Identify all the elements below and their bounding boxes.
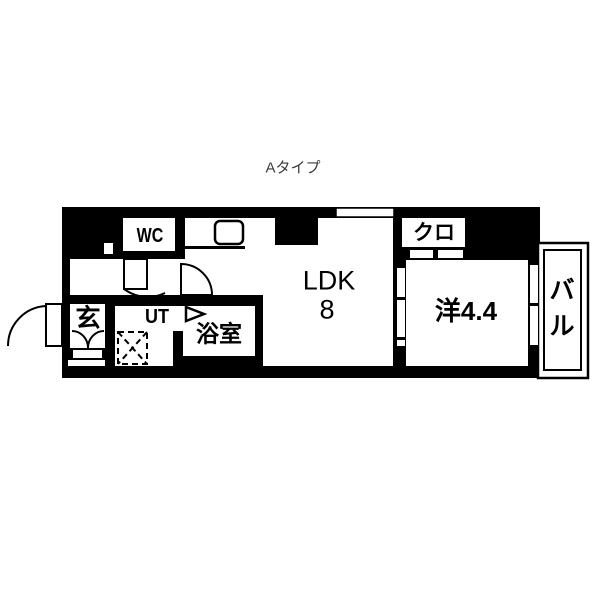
wc-door-leaf bbox=[124, 259, 147, 289]
closet-sliding-door-right bbox=[437, 249, 464, 259]
closet-sliding-door-left bbox=[409, 249, 434, 259]
bathroom-door-opening bbox=[173, 306, 183, 331]
balcony-window-gap-1 bbox=[530, 265, 538, 303]
floor-plan-page: Aタイプ bbox=[0, 0, 600, 600]
wall-block-top-left bbox=[62, 207, 123, 259]
wall-top bbox=[62, 207, 540, 218]
balcony-outline bbox=[538, 243, 588, 378]
kitchen-sink-symbol bbox=[215, 221, 243, 244]
room-size-ldk: 8 bbox=[319, 297, 334, 324]
balcony-window-gap-2 bbox=[530, 306, 538, 345]
room-label-balcony-bottom: ル bbox=[549, 315, 574, 340]
sliding-door-gap-2 bbox=[397, 300, 405, 337]
room-label-closet: クロ bbox=[413, 223, 455, 244]
room-label-utility: UT bbox=[145, 307, 169, 327]
wall-below-wc bbox=[123, 251, 185, 259]
sliding-door-gap-1 bbox=[397, 268, 405, 297]
entrance-door-leaf bbox=[46, 304, 62, 346]
wall-bath-bottom bbox=[183, 356, 263, 366]
kitchen-counter-edge bbox=[185, 246, 245, 249]
floor-plan-drawing bbox=[0, 0, 600, 600]
room-label-western: 洋4.4 bbox=[435, 298, 497, 324]
wall-niche bbox=[104, 243, 113, 254]
wall-bottom bbox=[62, 366, 540, 378]
washing-machine-symbol bbox=[118, 332, 147, 364]
room-label-wc: WC bbox=[137, 226, 164, 246]
wall-block-top-right bbox=[465, 218, 540, 260]
entrance-door-swing bbox=[8, 306, 46, 346]
ldk-door-swing bbox=[181, 264, 212, 295]
wall-ut-bath bbox=[173, 331, 183, 366]
wall-pillar-ldk bbox=[275, 217, 318, 245]
room-label-balcony-top: バ bbox=[549, 279, 574, 304]
sliding-door-gap-3 bbox=[397, 340, 405, 346]
room-label-entrance: 玄 bbox=[75, 307, 100, 332]
entrance-step-upper bbox=[72, 349, 103, 359]
top-window bbox=[336, 208, 394, 217]
entrance-step-lower bbox=[67, 359, 106, 367]
room-label-bathroom: 浴室 bbox=[196, 323, 242, 346]
room-label-ldk: LDK bbox=[303, 268, 356, 295]
